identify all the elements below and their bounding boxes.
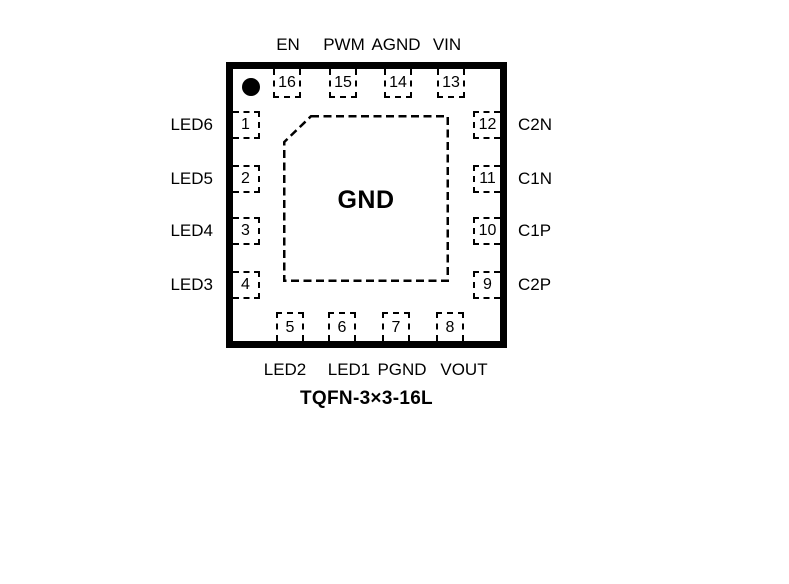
pin-label: VIN [402,36,492,54]
pin1-indicator-dot [242,78,260,96]
pin-number: 9 [483,277,492,293]
pin-number: 4 [241,277,250,293]
pin-label: LED4 [120,221,213,241]
pin-box: 4 [233,271,260,299]
pin-label: LED5 [120,169,213,189]
pin-label: C2N [518,115,611,135]
pin-box: 13 [437,69,465,98]
pin-box: 10 [473,217,500,245]
pin-label: LED3 [120,275,213,295]
pin-number: 12 [479,117,497,133]
pin-box: 14 [384,69,412,98]
package-name-caption: TQFN-3×3-16L [226,388,507,410]
pin-box: 9 [473,271,500,299]
pin-number: 6 [338,320,347,336]
pin-number: 3 [241,223,250,239]
pin-box: 6 [328,312,356,341]
pin-number: 15 [334,75,352,91]
pin-number: 2 [241,171,250,187]
pin-box: 8 [436,312,464,341]
pin-box: 3 [233,217,260,245]
pin-box: 5 [276,312,304,341]
pin-number: 5 [286,320,295,336]
pin-box: 16 [273,69,301,98]
pin-number: 8 [446,320,455,336]
pin-number: 14 [389,75,407,91]
pin-label: C1P [518,221,611,241]
pin-box: 1 [233,111,260,139]
pin-number: 16 [278,75,296,91]
pin-label: C1N [518,169,611,189]
pin-number: 7 [392,320,401,336]
pin-box: 12 [473,111,500,139]
exposed-pad-label: GND [283,115,449,285]
pin-number: 1 [241,117,250,133]
pin-label: LED6 [120,115,213,135]
pin-label: C2P [518,275,611,295]
pin-number: 11 [479,171,496,187]
pin-box: 15 [329,69,357,98]
pinout-diagram: EN PWM AGND VIN GND 16 15 14 13 1 2 3 4 … [0,0,789,584]
pin-box: 11 [473,165,500,193]
pin-number: 13 [442,75,460,91]
pin-box: 7 [382,312,410,341]
pin-label: VOUT [419,361,509,379]
pin-number: 10 [479,223,497,239]
pin-box: 2 [233,165,260,193]
